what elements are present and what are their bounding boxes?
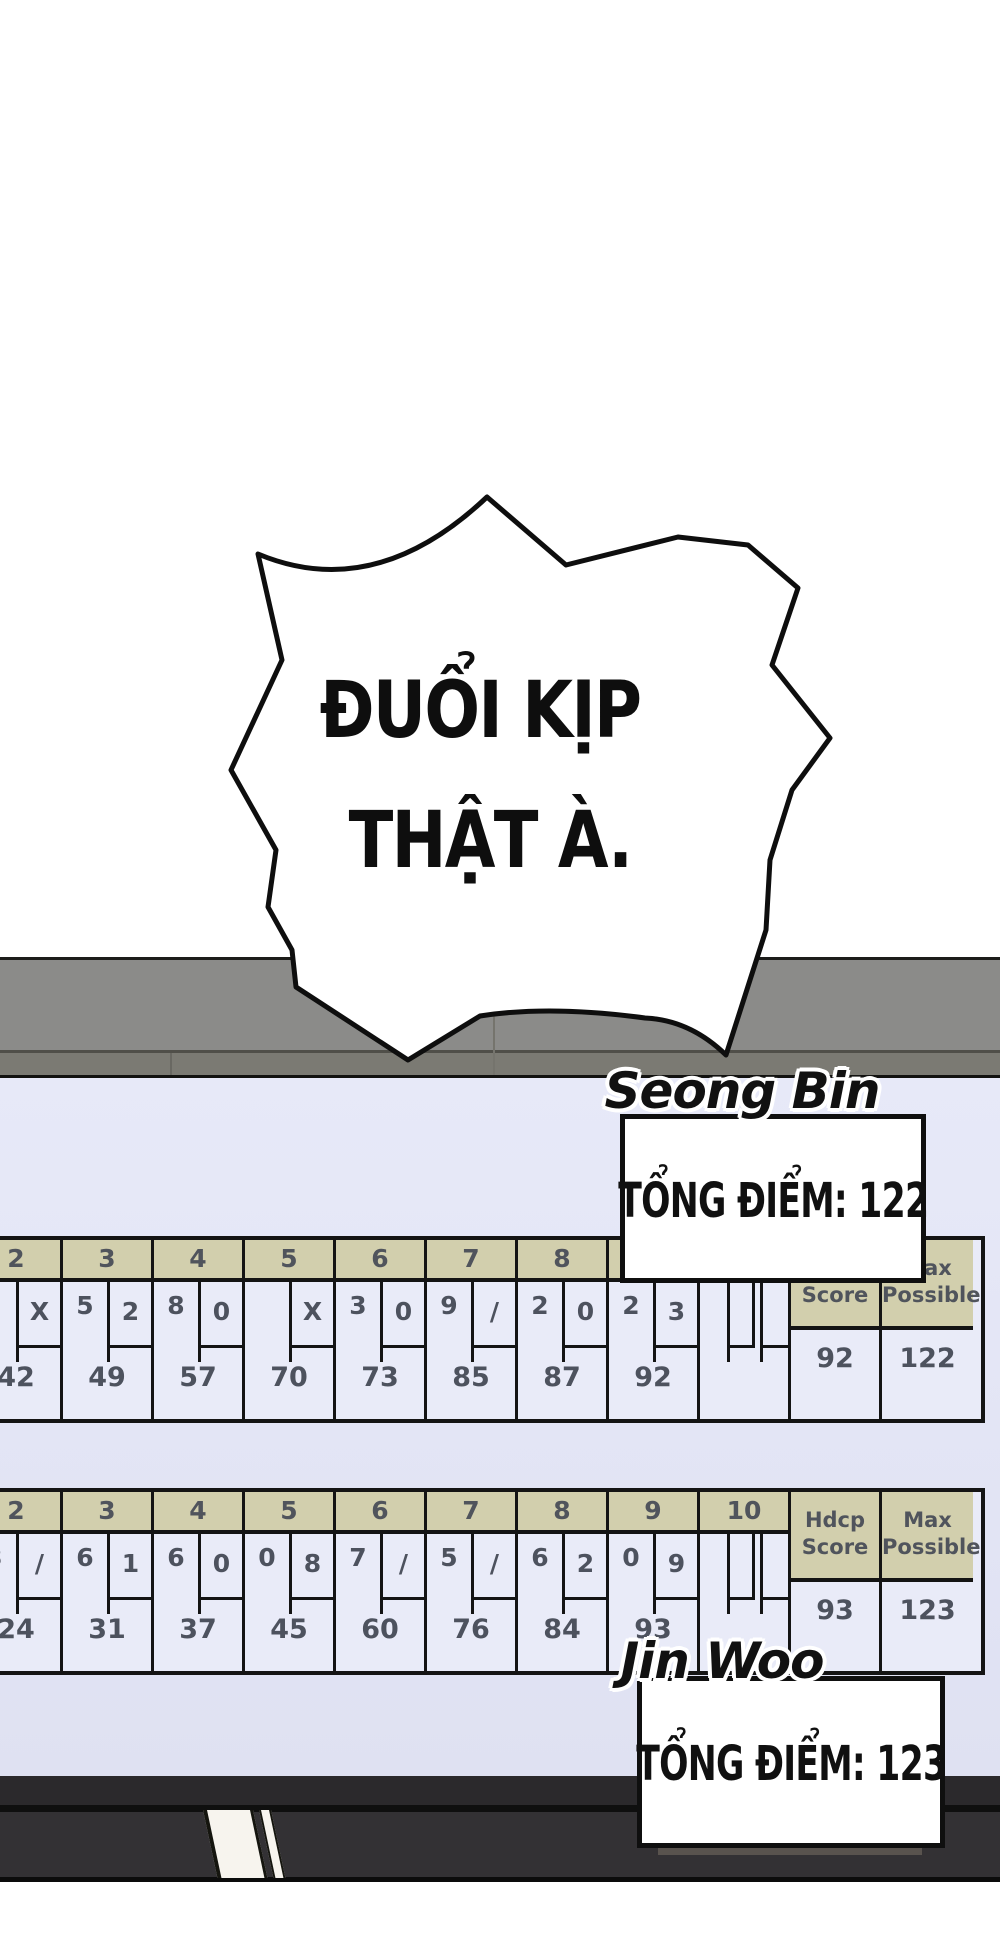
throw-1: 6: [63, 1543, 107, 1572]
frame-body: 5249: [63, 1282, 151, 1419]
frame-score: 70: [245, 1362, 333, 1393]
box-stub: [16, 1597, 19, 1614]
box-stub: [760, 1597, 763, 1614]
frame-body: 3/24: [0, 1534, 60, 1671]
frame-cell: 2X42: [0, 1240, 63, 1419]
frame-body: 2392: [609, 1282, 697, 1419]
total-score-box-jin-woo: TỔNG ĐIỂM: 123: [637, 1676, 945, 1848]
frame-score: 49: [63, 1362, 151, 1393]
frame-body: [700, 1282, 788, 1419]
throw-2-box: /: [16, 1534, 60, 1600]
summary-label-line: Score: [791, 1282, 879, 1309]
frame-number: 3: [63, 1240, 151, 1282]
bezel-vertical-seam: [170, 1053, 172, 1075]
frame-number: 5: [245, 1240, 333, 1282]
frame-score: 24: [0, 1614, 60, 1645]
frame-cell: 50845: [245, 1492, 336, 1671]
summary-column-label: MaxPossible: [882, 1492, 973, 1582]
frame-cell: 35249: [63, 1240, 154, 1419]
throw-2-box: 0: [198, 1534, 242, 1600]
throw-1: 7: [336, 1543, 380, 1572]
box-stub: [16, 1345, 19, 1362]
frame-cell: 63073: [336, 1240, 427, 1419]
box-stub: [653, 1345, 656, 1362]
frame-score: 73: [336, 1362, 424, 1393]
box-stub: [107, 1345, 110, 1362]
box-stub: [289, 1597, 292, 1614]
frame-score: 76: [427, 1614, 515, 1645]
frame-number: 5: [245, 1492, 333, 1534]
frame-body: 2087: [518, 1282, 606, 1419]
frame-number: 2: [0, 1492, 60, 1534]
frame-cell: 48057: [154, 1240, 245, 1419]
frame-number: 4: [154, 1240, 242, 1282]
throw-2-box: 9: [653, 1534, 697, 1600]
frame-number: 8: [518, 1492, 606, 1534]
speech-bubble: [180, 475, 860, 1085]
throw-1: 3: [336, 1291, 380, 1320]
frame-body: X42: [0, 1282, 60, 1419]
summary-column-value: 93: [791, 1582, 879, 1626]
box-stub: [380, 1345, 383, 1362]
tenth-throw-box: [760, 1282, 788, 1348]
bubble-text-line1: ĐUỔI KỊP: [228, 666, 732, 756]
bubble-text-line2: THẬT À.: [238, 796, 742, 886]
throw-1: 5: [427, 1543, 471, 1572]
summary-label-line: Possible: [882, 1282, 973, 1309]
tenth-throw-box: [727, 1534, 755, 1600]
summary-column: MaxPossible123: [882, 1492, 973, 1671]
frame-score: 87: [518, 1362, 606, 1393]
box-stub: [380, 1597, 383, 1614]
frame-number: 7: [427, 1492, 515, 1534]
throw-2-box: 0: [380, 1282, 424, 1348]
frame-cell: 36131: [63, 1492, 154, 1671]
frame-number: 2: [0, 1240, 60, 1282]
frame-body: 6037: [154, 1534, 242, 1671]
throw-2-box: /: [380, 1534, 424, 1600]
throw-2-box: 8: [289, 1534, 333, 1600]
frame-number: 6: [336, 1240, 424, 1282]
summary-label-line: Score: [791, 1534, 879, 1561]
throw-2-box: 0: [198, 1282, 242, 1348]
frame-number: 10: [700, 1492, 788, 1534]
frame-score: 37: [154, 1614, 242, 1645]
speech-bubble-outline: [231, 497, 830, 1060]
throw-2-box: X: [16, 1282, 60, 1348]
summary-column-label: HdcpScore: [791, 1492, 879, 1582]
throw-1: 6: [154, 1543, 198, 1572]
throw-2-box: 1: [107, 1534, 151, 1600]
frame-cell: 46037: [154, 1492, 245, 1671]
summary-label-line: Max: [882, 1507, 973, 1534]
box-stub: [760, 1345, 763, 1362]
frame-number: 6: [336, 1492, 424, 1534]
throw-2-box: 0: [562, 1282, 606, 1348]
throw-2-box: 2: [107, 1282, 151, 1348]
throw-2-box: /: [471, 1282, 515, 1348]
box-stub: [107, 1597, 110, 1614]
summary-label-line: Hdcp: [791, 1507, 879, 1534]
tenth-throw-box: [760, 1534, 788, 1600]
player-name-jin-woo: Jin Woo: [572, 1632, 872, 1690]
throw-1: 2: [609, 1291, 653, 1320]
frame-number: 8: [518, 1240, 606, 1282]
throw-2-box: 2: [562, 1534, 606, 1600]
box-stub: [198, 1345, 201, 1362]
total-score-box-seong-bin: TỔNG ĐIỂM: 122: [620, 1114, 926, 1283]
summary-column-value: 92: [791, 1330, 879, 1374]
frame-cell: 82087: [518, 1240, 609, 1419]
cabinet-bottom-edge: [0, 1877, 1000, 1882]
frame-score: 57: [154, 1362, 242, 1393]
frame-score: 42: [0, 1362, 60, 1393]
box-stub: [471, 1597, 474, 1614]
box-stub: [562, 1345, 565, 1362]
throw-1: 3: [0, 1543, 16, 1572]
throw-1: 0: [245, 1543, 289, 1572]
frame-cell: 67/60: [336, 1492, 427, 1671]
frame-score: 85: [427, 1362, 515, 1393]
throw-1: 8: [154, 1291, 198, 1320]
throw-1: 5: [63, 1291, 107, 1320]
frame-number: 4: [154, 1492, 242, 1534]
frame-body: 0845: [245, 1534, 333, 1671]
throw-1: 6: [518, 1543, 562, 1572]
box-stub: [471, 1345, 474, 1362]
comic-panel: 2X4235249480575X706307379/85820879239210…: [0, 0, 1000, 1956]
frame-body: 7/60: [336, 1534, 424, 1671]
throw-1: 0: [609, 1543, 653, 1572]
frame-body: X70: [245, 1282, 333, 1419]
frame-number: 7: [427, 1240, 515, 1282]
frame-body: 8057: [154, 1282, 242, 1419]
summary-column-value: 122: [882, 1330, 973, 1374]
throw-1: 9: [427, 1291, 471, 1320]
box-stub: [653, 1597, 656, 1614]
throw-2-box: X: [289, 1282, 333, 1348]
frame-cell: 79/85: [427, 1240, 518, 1419]
box-stub: [198, 1597, 201, 1614]
frame-body: 5/76: [427, 1534, 515, 1671]
summary-label-line: Possible: [882, 1534, 973, 1561]
throw-1: 2: [518, 1291, 562, 1320]
frame-body: 3073: [336, 1282, 424, 1419]
frame-number: 3: [63, 1492, 151, 1534]
frame-cell: 23/24: [0, 1492, 63, 1671]
frame-score: 31: [63, 1614, 151, 1645]
frame-body: 6131: [63, 1534, 151, 1671]
box-stub: [562, 1597, 565, 1614]
total-score-text: TỔNG ĐIỂM: 122: [618, 1169, 928, 1229]
summary-column-value: 123: [882, 1582, 973, 1626]
frame-score: 92: [609, 1362, 697, 1393]
frame-score: 60: [336, 1614, 424, 1645]
tenth-throw-box: [727, 1282, 755, 1348]
frame-body: 9/85: [427, 1282, 515, 1419]
box-stub: [727, 1597, 730, 1614]
frame-cell: 5X70: [245, 1240, 336, 1419]
total-score-text: TỔNG ĐIỂM: 123: [636, 1732, 946, 1792]
frame-cell: 75/76: [427, 1492, 518, 1671]
box-stub: [727, 1345, 730, 1362]
frame-number: 9: [609, 1492, 697, 1534]
frame-score: 45: [245, 1614, 333, 1645]
throw-2-box: /: [471, 1534, 515, 1600]
box-stub: [289, 1345, 292, 1362]
throw-2-box: 3: [653, 1282, 697, 1348]
